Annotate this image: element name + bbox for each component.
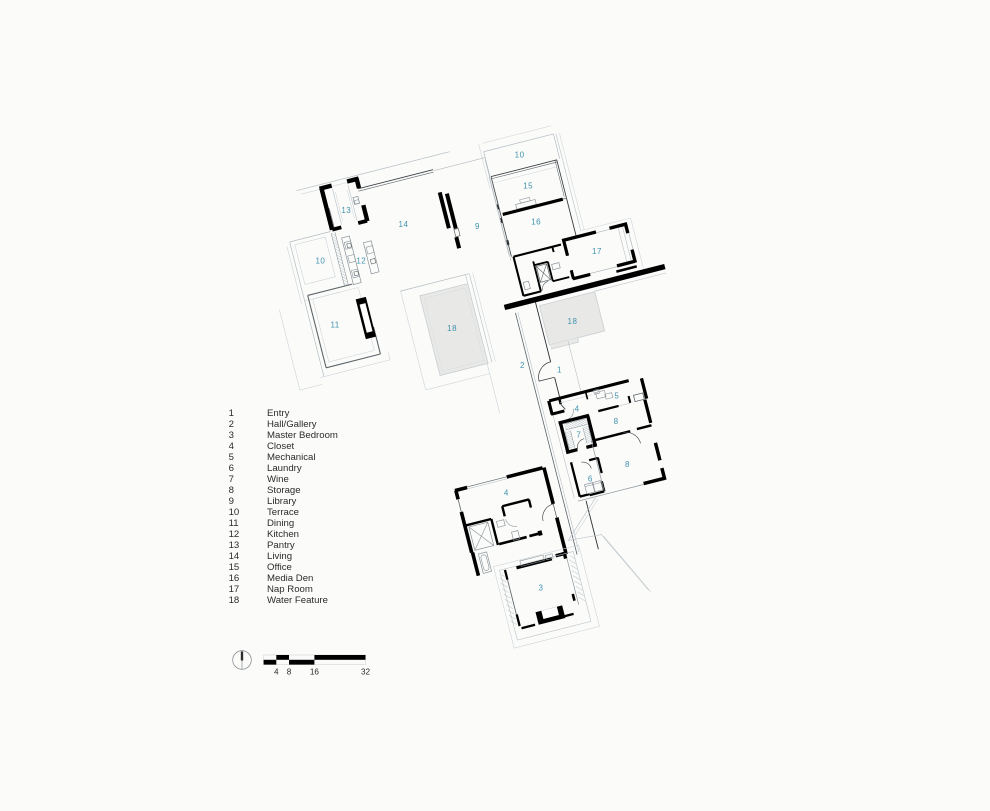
svg-text:4: 4	[504, 489, 509, 498]
svg-text:Terrace: Terrace	[267, 507, 299, 518]
svg-text:Library: Library	[267, 496, 297, 507]
svg-text:7: 7	[229, 474, 234, 485]
svg-text:18: 18	[229, 595, 240, 606]
svg-text:3: 3	[229, 430, 234, 441]
svg-text:15: 15	[229, 562, 240, 573]
svg-text:8: 8	[625, 460, 630, 469]
svg-text:Hall/Gallery: Hall/Gallery	[267, 419, 317, 430]
svg-text:Master Bedroom: Master Bedroom	[267, 430, 338, 441]
svg-text:2: 2	[520, 361, 525, 370]
svg-text:6: 6	[229, 463, 234, 474]
svg-text:14: 14	[399, 220, 409, 229]
svg-text:Storage: Storage	[267, 485, 301, 496]
svg-text:17: 17	[592, 247, 602, 256]
svg-text:Pantry: Pantry	[267, 540, 295, 551]
svg-text:7: 7	[576, 431, 581, 440]
svg-text:Water Feature: Water Feature	[267, 595, 328, 606]
svg-text:2: 2	[229, 419, 234, 430]
svg-text:18: 18	[568, 317, 578, 326]
svg-text:4: 4	[229, 441, 235, 452]
svg-text:5: 5	[614, 391, 619, 400]
svg-text:Office: Office	[267, 562, 292, 573]
svg-text:17: 17	[229, 584, 240, 595]
svg-text:Nap Room: Nap Room	[267, 584, 313, 595]
svg-text:16: 16	[310, 668, 320, 677]
svg-text:9: 9	[475, 222, 480, 231]
svg-text:3: 3	[539, 583, 544, 592]
svg-text:Laundry: Laundry	[267, 463, 302, 474]
svg-text:Media Den: Media Den	[267, 573, 313, 584]
svg-text:8: 8	[287, 668, 292, 677]
svg-text:12: 12	[356, 256, 366, 265]
svg-text:5: 5	[229, 452, 234, 463]
svg-text:16: 16	[229, 573, 240, 584]
svg-text:9: 9	[229, 496, 234, 507]
svg-text:13: 13	[341, 206, 351, 215]
svg-text:14: 14	[229, 551, 240, 562]
svg-text:13: 13	[229, 540, 240, 551]
svg-text:Entry: Entry	[267, 408, 290, 419]
svg-text:12: 12	[229, 529, 240, 540]
svg-text:Kitchen: Kitchen	[267, 529, 299, 540]
svg-text:11: 11	[229, 518, 239, 529]
svg-text:10: 10	[229, 507, 240, 518]
svg-text:15: 15	[523, 181, 533, 190]
svg-text:4: 4	[575, 405, 580, 414]
svg-text:16: 16	[531, 218, 541, 227]
svg-text:Dining: Dining	[267, 518, 294, 529]
svg-text:4: 4	[274, 668, 279, 677]
svg-text:11: 11	[330, 321, 339, 330]
svg-text:Living: Living	[267, 551, 292, 562]
svg-text:32: 32	[361, 668, 371, 677]
svg-text:Wine: Wine	[267, 474, 289, 485]
svg-text:Closet: Closet	[267, 441, 295, 452]
svg-text:18: 18	[447, 324, 457, 333]
svg-text:6: 6	[588, 474, 593, 483]
svg-text:1: 1	[229, 408, 234, 419]
svg-text:10: 10	[315, 256, 325, 265]
svg-text:8: 8	[229, 485, 234, 496]
svg-text:10: 10	[515, 151, 525, 160]
svg-text:1: 1	[557, 366, 562, 375]
svg-text:Mechanical: Mechanical	[267, 452, 316, 463]
svg-text:8: 8	[614, 417, 619, 426]
